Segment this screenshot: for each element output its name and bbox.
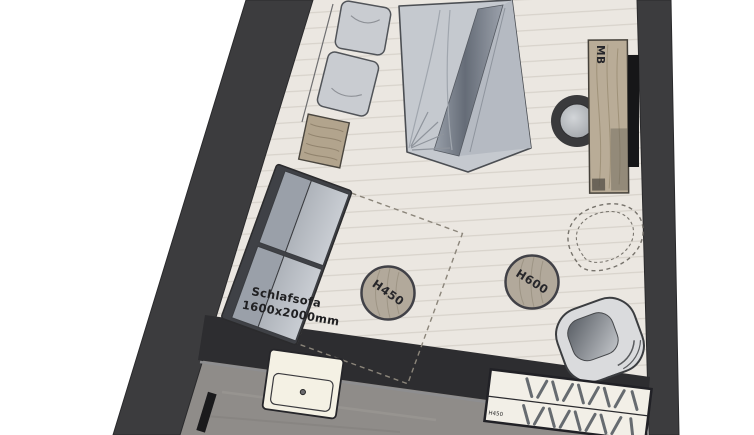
floor-plan: MB Schlafsofa 1600x2000mm H450 H600 <box>0 0 754 435</box>
tv-panel <box>628 55 639 167</box>
sink <box>262 349 344 419</box>
floor-plan-canvas: MB Schlafsofa 1600x2000mm H450 H600 <box>0 0 754 435</box>
minibar-label: MB <box>594 45 606 64</box>
pouf-h450: H450 <box>362 267 415 320</box>
nightstand <box>299 114 350 168</box>
pouf-h600: H600 <box>506 256 559 309</box>
pillow <box>334 0 392 56</box>
